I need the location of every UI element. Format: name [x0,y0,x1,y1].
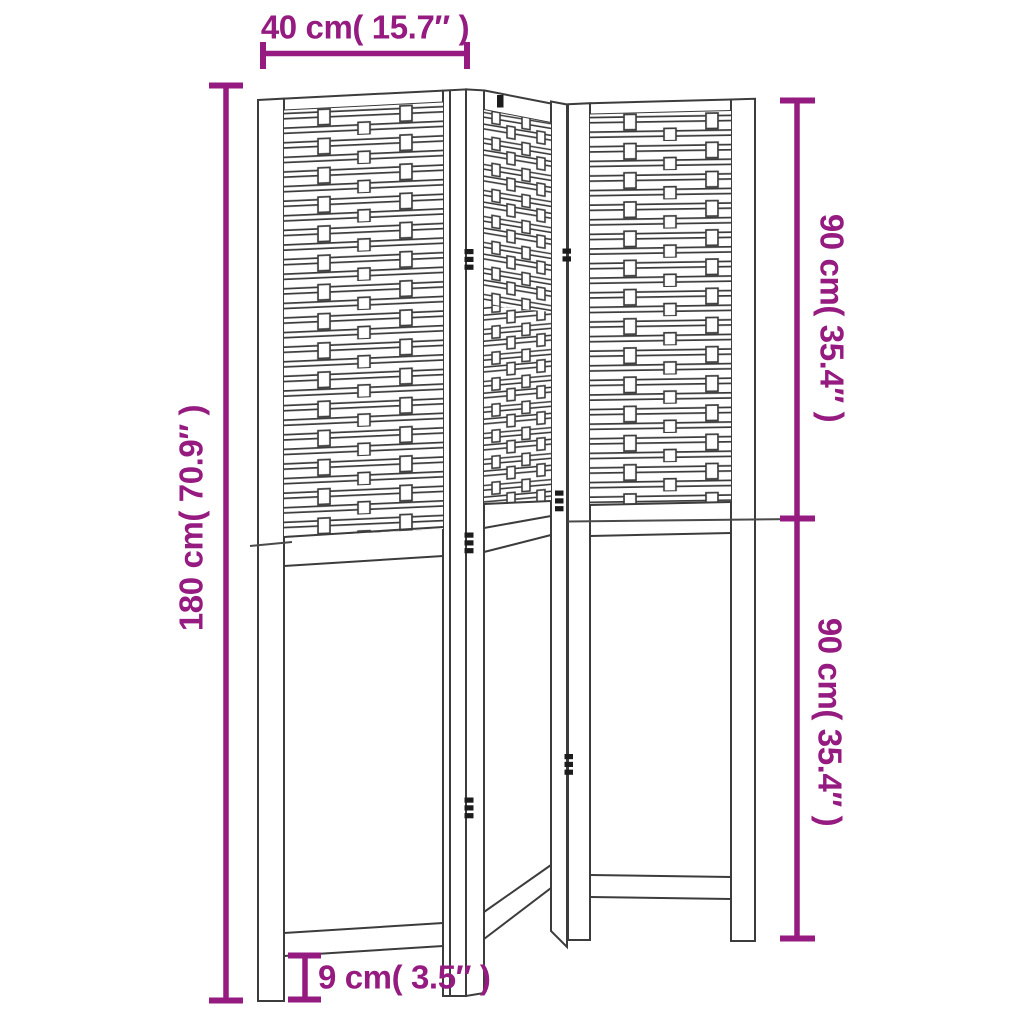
leg-height-label: 9 cm( 3.5″ ) [318,961,490,994]
mid-extension-line [568,519,800,522]
hinge-icon [465,798,474,819]
hinge-icon [465,533,474,554]
total-height-label: 180 cm( 70.9″ ) [175,405,208,631]
middle-panel [466,89,567,996]
hinge-pin-icon [497,95,504,108]
left-panel [250,89,466,1001]
right-dimension-line [780,101,815,939]
top-dimension-line [263,42,467,69]
diagram-canvas: 40 cm( 15.7″ ) 180 cm( 70.9″ ) 90 cm( 35… [0,0,1024,1024]
hinge-icon [555,491,564,512]
panel-width-label: 40 cm( 15.7″ ) [261,11,469,44]
upper-section-height-label: 90 cm( 35.4″ ) [816,214,849,422]
lower-section-height-label: 90 cm( 35.4″ ) [814,618,847,826]
left-dimension-line [209,86,243,1001]
hinge-icon [565,754,574,775]
leg-dimension-line [288,956,321,1000]
divider-drawing [250,89,800,1001]
hinge-icon [465,249,474,270]
divider-line-art [0,0,1024,1024]
